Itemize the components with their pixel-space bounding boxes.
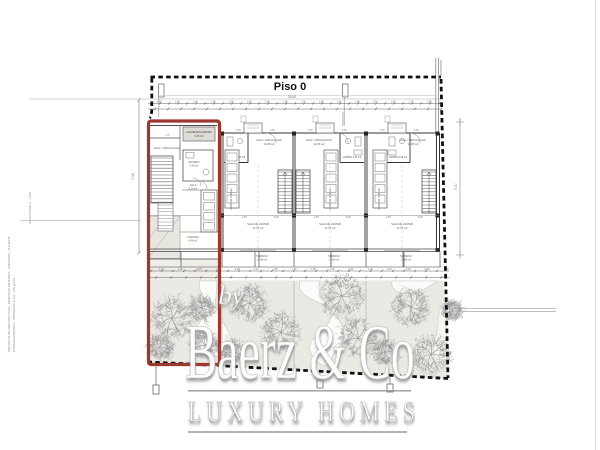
svg-text:1.44: 1.44 bbox=[158, 267, 164, 271]
svg-text:1.75: 1.75 bbox=[291, 267, 297, 271]
svg-text:14.05 m2: 14.05 m2 bbox=[264, 142, 275, 146]
svg-text:1.48: 1.48 bbox=[386, 216, 391, 219]
svg-text:1.75: 1.75 bbox=[300, 99, 306, 103]
svg-text:20.00: 20.00 bbox=[288, 95, 296, 99]
svg-text:1.38: 1.38 bbox=[234, 267, 240, 271]
svg-text:14.05 m2: 14.05 m2 bbox=[314, 142, 325, 146]
svg-text:7.38: 7.38 bbox=[131, 173, 135, 180]
svg-text:1.08: 1.08 bbox=[405, 267, 411, 271]
svg-text:1.30: 1.30 bbox=[329, 267, 335, 271]
svg-text:1.08: 1.08 bbox=[228, 99, 234, 103]
svg-text:1.30: 1.30 bbox=[174, 99, 180, 103]
svg-text:1.44: 1.44 bbox=[192, 99, 198, 103]
svg-text:1.38: 1.38 bbox=[310, 267, 316, 271]
svg-text:LAVANDARIA/ARRUMO: LAVANDARIA/ARRUMO bbox=[186, 131, 212, 134]
svg-text:LAVABO 3.30 m2: LAVABO 3.30 m2 bbox=[389, 156, 408, 159]
svg-text:1.08: 1.08 bbox=[246, 99, 252, 103]
svg-text:HALL / CIRCULACAO: HALL / CIRCULACAO bbox=[400, 138, 426, 142]
svg-text:1.38: 1.38 bbox=[318, 99, 324, 103]
svg-text:5.48: 5.48 bbox=[274, 216, 279, 219]
svg-text:1.60: 1.60 bbox=[236, 129, 241, 132]
svg-text:1.44: 1.44 bbox=[367, 267, 373, 271]
svg-text:2.48: 2.48 bbox=[264, 99, 270, 103]
svg-text:17.76 m2: 17.76 m2 bbox=[253, 226, 264, 230]
svg-text:1.48: 1.48 bbox=[242, 216, 247, 219]
svg-text:1.75: 1.75 bbox=[408, 99, 414, 103]
svg-text:COZINHA 10.02 m2: COZINHA 10.02 m2 bbox=[378, 188, 381, 210]
svg-text:HALL / CIRCULACAO: HALL / CIRCULACAO bbox=[306, 138, 332, 142]
svg-text:1.60: 1.60 bbox=[308, 129, 313, 132]
svg-text:Baerz & Co: Baerz & Co bbox=[185, 309, 415, 396]
svg-text:LAVABO 3.30 m2: LAVABO 3.30 m2 bbox=[343, 156, 362, 159]
svg-text:2.48: 2.48 bbox=[270, 129, 275, 132]
svg-text:1.75: 1.75 bbox=[165, 134, 170, 137]
svg-text:1.38: 1.38 bbox=[282, 99, 288, 103]
svg-text:SALA: SALA bbox=[190, 183, 197, 187]
svg-text:17.76 m2: 17.76 m2 bbox=[325, 226, 336, 230]
svg-text:17.76 m2: 17.76 m2 bbox=[397, 226, 408, 230]
svg-text:5.48: 5.48 bbox=[346, 216, 351, 219]
svg-text:5.48: 5.48 bbox=[418, 216, 423, 219]
svg-text:5.50: 5.50 bbox=[454, 183, 458, 190]
svg-text:2.48: 2.48 bbox=[414, 129, 419, 132]
svg-text:1.44: 1.44 bbox=[354, 99, 360, 103]
svg-text:14.05 m2: 14.05 m2 bbox=[408, 142, 419, 146]
svg-text:1.08: 1.08 bbox=[196, 267, 202, 271]
svg-text:5.25 m2: 5.25 m2 bbox=[195, 135, 204, 138]
svg-text:1.38: 1.38 bbox=[210, 99, 216, 103]
svg-text:1.30: 1.30 bbox=[386, 267, 392, 271]
svg-text:1.38: 1.38 bbox=[272, 267, 278, 271]
svg-text:2.48: 2.48 bbox=[156, 99, 162, 103]
svg-text:HALL / CIRCULACAO: HALL / CIRCULACAO bbox=[154, 146, 180, 150]
svg-text:PROJECTO DE ARQUITECTURA . MOR: PROJECTO DE ARQUITECTURA . MORADIAS EM B… bbox=[7, 236, 11, 352]
svg-text:LUXURY HOMES: LUXURY HOMES bbox=[188, 395, 420, 428]
svg-text:8.48 m2: 8.48 m2 bbox=[189, 240, 198, 243]
svg-text:COZINHA 10.02 m2: COZINHA 10.02 m2 bbox=[230, 188, 233, 210]
svg-text:2.40 m2: 2.40 m2 bbox=[190, 165, 199, 168]
svg-text:1.44: 1.44 bbox=[253, 267, 259, 271]
svg-text:COZINHA 10.02 m2: COZINHA 10.02 m2 bbox=[329, 188, 332, 210]
svg-text:1.44: 1.44 bbox=[372, 99, 378, 103]
svg-text:COZINHA: COZINHA bbox=[187, 235, 199, 239]
svg-text:1.08: 1.08 bbox=[426, 99, 432, 103]
svg-text:0.60: 0.60 bbox=[348, 267, 354, 271]
svg-text:1.08: 1.08 bbox=[390, 99, 396, 103]
svg-text:CAMARA MUNICIPAL . PROCESSO N: CAMARA MUNICIPAL . PROCESSO N 112 . FOLH… bbox=[12, 278, 16, 352]
svg-text:1.08: 1.08 bbox=[336, 99, 342, 103]
svg-text:by: by bbox=[218, 280, 244, 310]
svg-text:HALL / CIRCULACAO: HALL / CIRCULACAO bbox=[256, 138, 282, 142]
svg-text:1.60: 1.60 bbox=[380, 129, 385, 132]
svg-text:1.38: 1.38 bbox=[177, 267, 183, 271]
svg-text:PLANTA PISO 0 . 1:100: PLANTA PISO 0 . 1:100 bbox=[28, 192, 32, 224]
svg-text:2.48: 2.48 bbox=[342, 129, 347, 132]
svg-text:0.60: 0.60 bbox=[424, 267, 430, 271]
svg-text:Piso 0: Piso 0 bbox=[274, 81, 306, 93]
svg-text:1.48: 1.48 bbox=[314, 216, 319, 219]
